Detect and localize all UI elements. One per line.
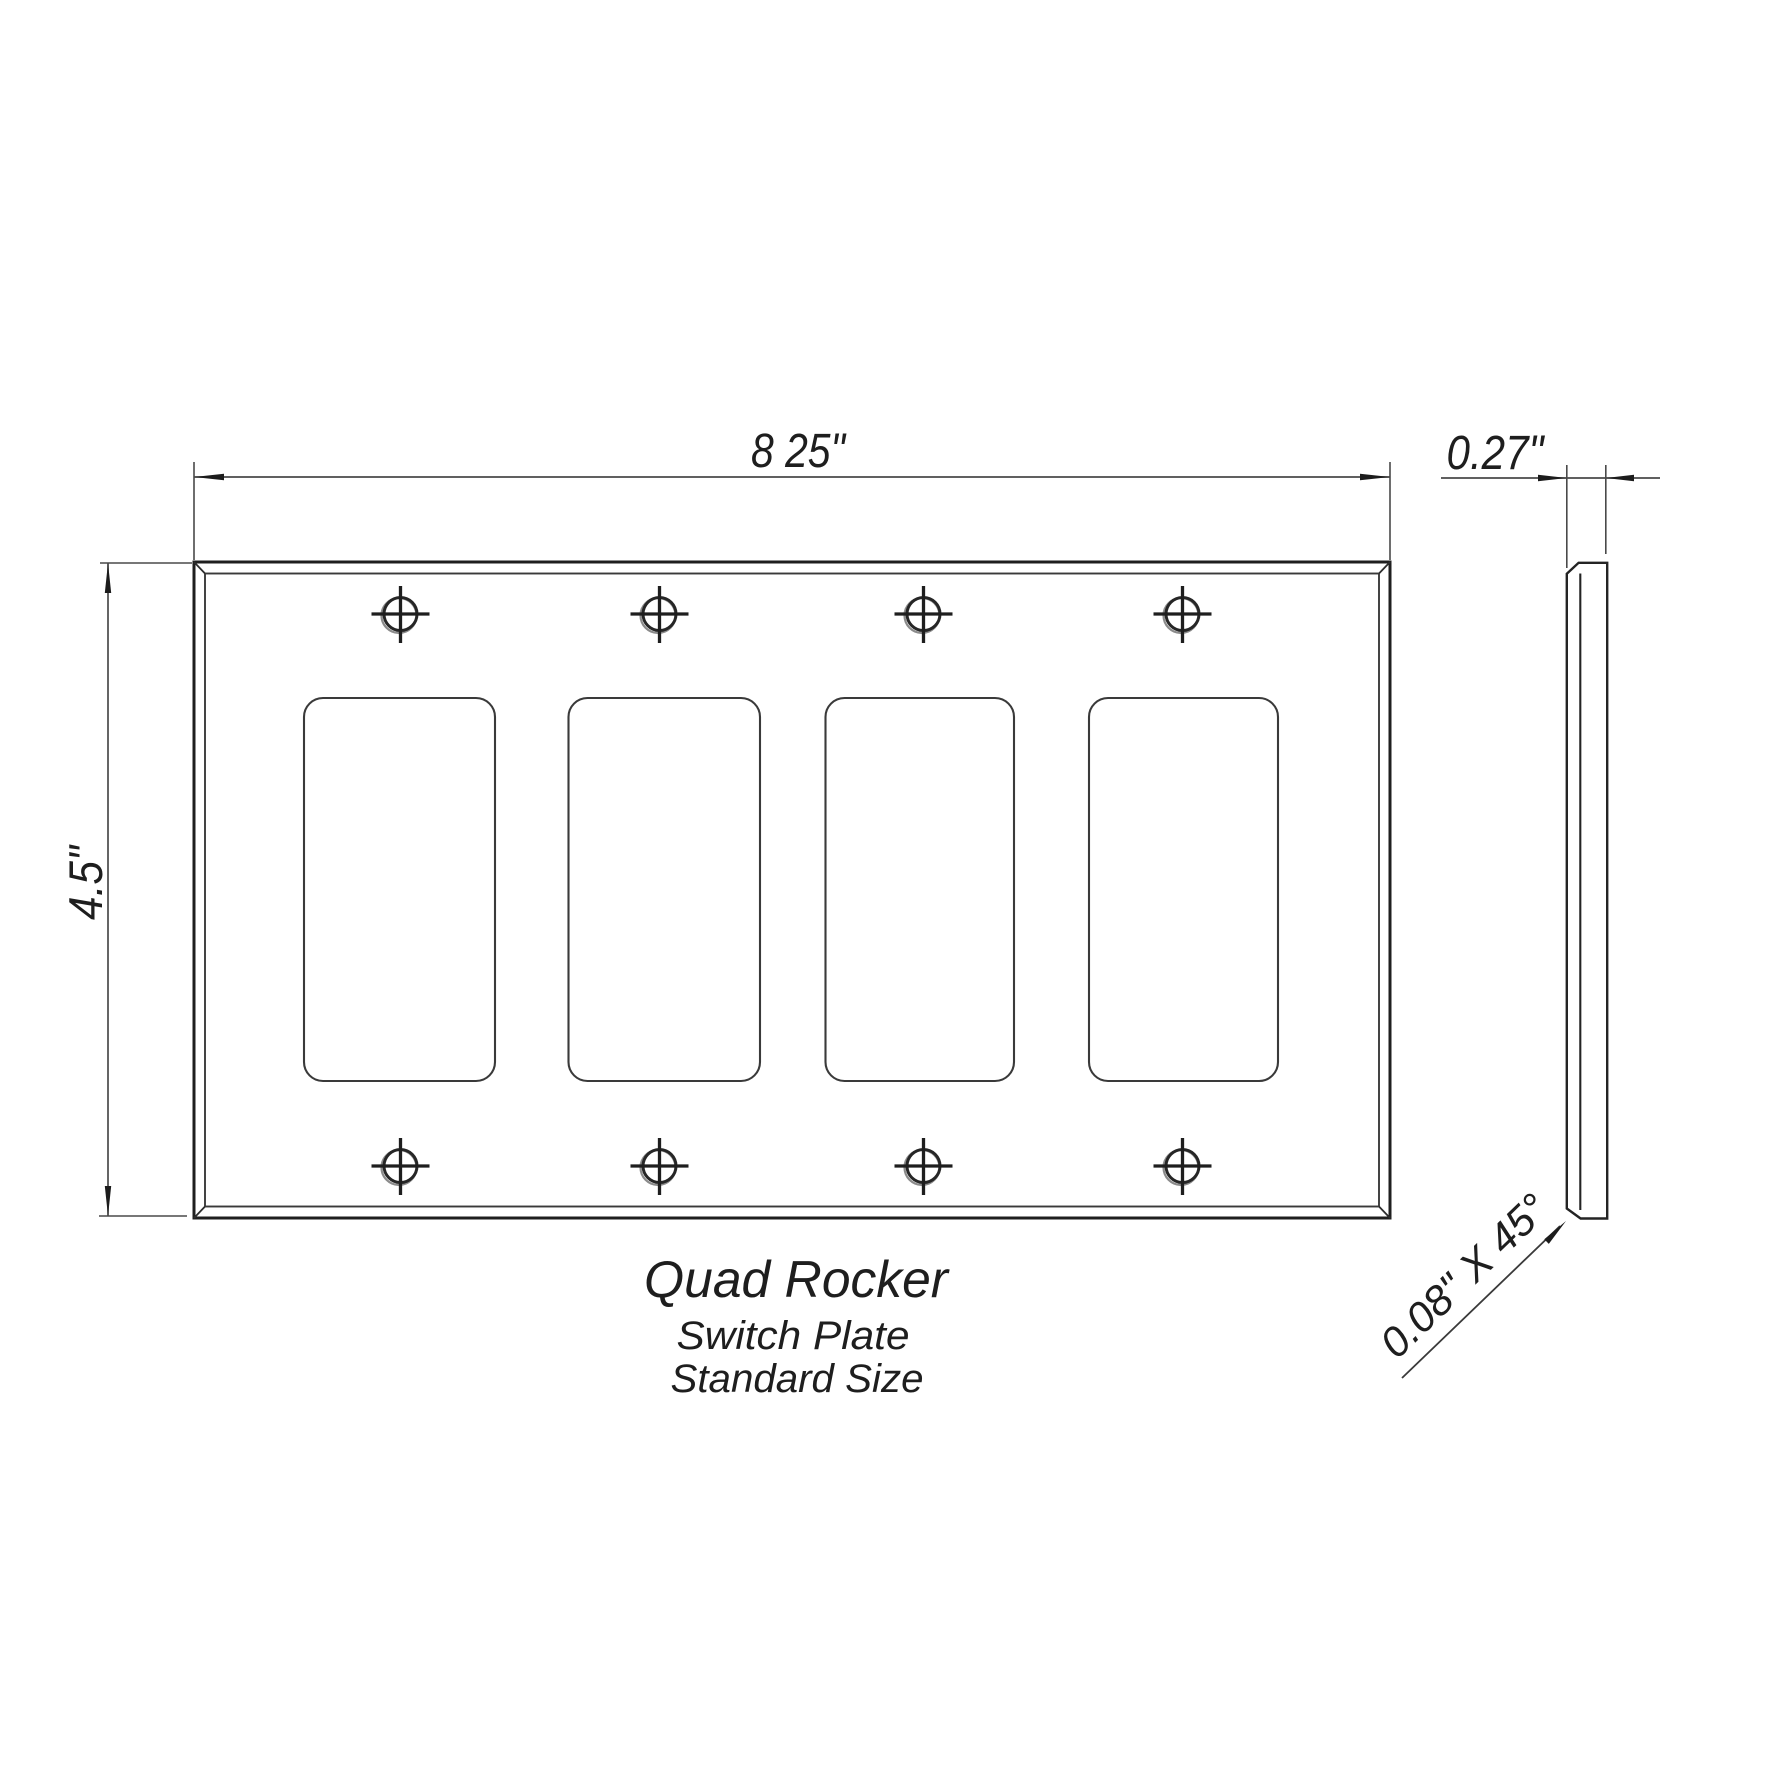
svg-text:4.5": 4.5" [59,844,112,920]
svg-text:Switch Plate: Switch Plate [677,1314,910,1358]
svg-text:8 25": 8 25" [751,425,847,478]
svg-text:Standard Size: Standard Size [671,1357,924,1401]
svg-text:Quad Rocker: Quad Rocker [644,1251,951,1309]
svg-text:0.27": 0.27" [1447,427,1546,480]
